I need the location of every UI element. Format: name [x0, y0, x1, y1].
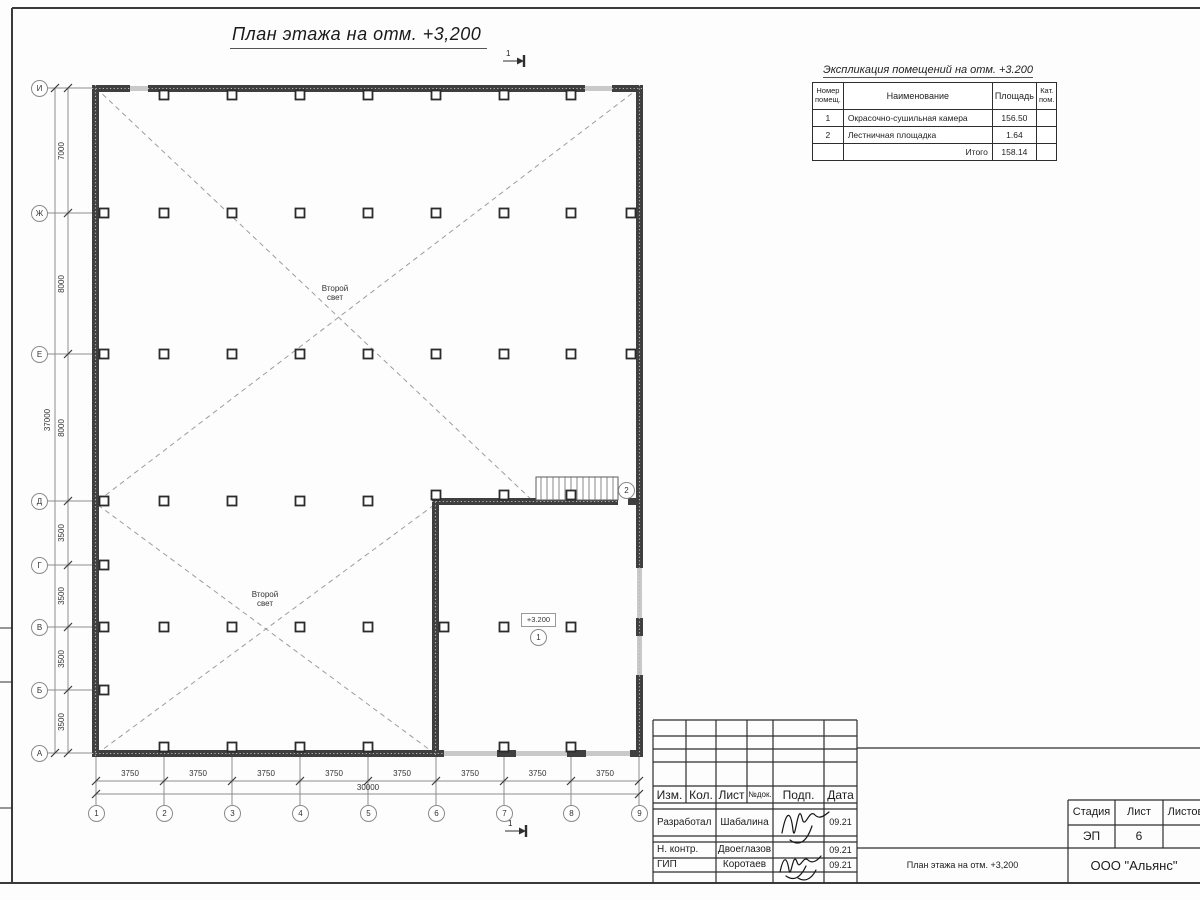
column: [567, 350, 576, 359]
header-cat: Кат. пом.: [1037, 83, 1057, 110]
tb-name-gip: Коротаев: [716, 858, 773, 872]
signatures: [780, 812, 829, 880]
dim-label-horizontal: 3750: [450, 769, 490, 779]
explication-title: Экспликация помещений на отм. +3.200: [823, 64, 1033, 78]
column: [364, 209, 373, 218]
wall-opening: [586, 751, 630, 756]
column: [500, 209, 509, 218]
tb-doc-title: План этажа на отм. +3,200: [857, 848, 1068, 883]
axis-circle-col-8: 8: [563, 805, 580, 822]
column: [228, 497, 237, 506]
tb-date-developer: 09.21: [824, 809, 857, 836]
column: [296, 623, 305, 632]
column: [567, 743, 576, 752]
column: [364, 497, 373, 506]
column: [500, 491, 509, 500]
dim-label-vertical: 3500: [57, 576, 67, 616]
room-area-cell: 1.64: [992, 127, 1036, 144]
tb-sheets-label: Листов: [1163, 800, 1200, 825]
dim-label-horizontal: 3750: [110, 769, 150, 779]
tb-col-ndok: №док.: [747, 787, 773, 803]
header-number: Номер помещ.: [813, 83, 844, 110]
total-area: 158.14: [992, 144, 1036, 161]
axis-circle-col-3: 3: [224, 805, 241, 822]
column: [160, 497, 169, 506]
tb-col-list: Лист: [716, 787, 747, 803]
axis-circle-row-Е: Е: [31, 346, 48, 363]
section-mark-top-label: 1: [506, 49, 510, 58]
tb-name-ncontrol: Двоеглазов: [716, 842, 773, 858]
tb-col-podp: Подп.: [773, 787, 824, 803]
explication-header-row: Номер помещ. Наименование Площадь Кат. п…: [813, 83, 1057, 110]
column: [567, 623, 576, 632]
tb-company: ООО "Альянс": [1068, 848, 1200, 883]
column: [100, 497, 109, 506]
column: [296, 497, 305, 506]
header-area: Площадь: [992, 83, 1036, 110]
room-name-cell: Окрасочно-сушильная камера: [843, 110, 992, 127]
drawing-title: План этажа на отм. +3,200: [230, 24, 487, 49]
column: [160, 91, 169, 100]
dim-label-horizontal: 3750: [585, 769, 625, 779]
column: [160, 743, 169, 752]
column: [432, 209, 441, 218]
axis-circle-col-4: 4: [292, 805, 309, 822]
room-name-cell: Лестничная площадка: [843, 127, 992, 144]
elevation-mark: +3.200: [521, 613, 556, 627]
column: [228, 91, 237, 100]
axis-circle-row-Б: Б: [31, 682, 48, 699]
empty-cell: [1037, 144, 1057, 161]
void-diagonal: [98, 88, 639, 501]
dim-label-horizontal: 3750: [246, 769, 286, 779]
axis-circle-col-5: 5: [360, 805, 377, 822]
header-name: Наименование: [843, 83, 992, 110]
signature: [780, 856, 821, 880]
void-diagonals: [96, 88, 639, 753]
dim-label-vertical-total: 37000: [43, 400, 53, 440]
column: [432, 491, 441, 500]
axis-circle-row-Г: Г: [31, 557, 48, 574]
column: [228, 623, 237, 632]
dim-label-horizontal: 3750: [178, 769, 218, 779]
axis-leaders: [46, 88, 639, 806]
dim-label-vertical: 3500: [57, 702, 67, 742]
walls: [92, 85, 643, 757]
room-number-1: 1: [530, 629, 547, 646]
second-light-label-upper: Второй свет: [313, 284, 357, 302]
axis-circle-row-И: И: [31, 80, 48, 97]
table-row: 2 Лестничная площадка 1.64: [813, 127, 1057, 144]
wall-opening: [444, 751, 497, 756]
tb-col-izm: Изм.: [653, 787, 686, 803]
column: [100, 561, 109, 570]
dimension-ticks: [51, 84, 643, 798]
room-cat-cell: [1037, 110, 1057, 127]
tb-col-data: Дата: [824, 787, 857, 803]
signature: [782, 812, 829, 843]
column: [296, 209, 305, 218]
axis-circle-row-Д: Д: [31, 493, 48, 510]
column: [567, 209, 576, 218]
tb-sheet-value: 6: [1115, 825, 1163, 848]
column: [627, 350, 636, 359]
column: [432, 350, 441, 359]
axis-circle-col-6: 6: [428, 805, 445, 822]
column: [100, 686, 109, 695]
tb-col-kol: Кол.: [686, 787, 716, 803]
column: [364, 91, 373, 100]
wall-bottom-corner: [630, 750, 643, 757]
dimension-lines: [55, 88, 639, 794]
tb-stage-value: ЭП: [1068, 825, 1115, 848]
axis-circle-col-7: 7: [496, 805, 513, 822]
tb-sheet-label: Лист: [1115, 800, 1163, 825]
column: [567, 491, 576, 500]
tb-role-gip: ГИП: [657, 858, 715, 872]
column: [364, 743, 373, 752]
table-row: 1 Окрасочно-сушильная камера 156.50: [813, 110, 1057, 127]
wall-opening: [585, 86, 612, 91]
axis-circle-col-2: 2: [156, 805, 173, 822]
dim-label-horizontal: 3750: [518, 769, 558, 779]
column: [160, 209, 169, 218]
room-number-cell: 1: [813, 110, 844, 127]
tb-date-gip: 09.21: [824, 858, 857, 872]
column: [228, 743, 237, 752]
dim-label-vertical: 7000: [57, 131, 67, 171]
column: [500, 91, 509, 100]
tb-date-ncontrol: 09.21: [824, 842, 857, 858]
tb-stage-label: Стадия: [1068, 800, 1115, 825]
column: [228, 209, 237, 218]
dim-label-horizontal-total: 30000: [348, 783, 388, 793]
column: [296, 91, 305, 100]
axis-circle-row-В: В: [31, 619, 48, 636]
dim-label-horizontal: 3750: [314, 769, 354, 779]
dim-label-vertical: 8000: [57, 264, 67, 304]
axis-circle-col-9: 9: [631, 805, 648, 822]
total-label: Итого: [843, 144, 992, 161]
empty-cell: [813, 144, 844, 161]
column: [432, 91, 441, 100]
staircase: [536, 477, 618, 500]
column: [228, 350, 237, 359]
column: [567, 91, 576, 100]
column: [627, 209, 636, 218]
column: [100, 350, 109, 359]
dim-label-vertical: 8000: [57, 408, 67, 448]
column: [500, 350, 509, 359]
total-row: Итого 158.14: [813, 144, 1057, 161]
wall-texture: [92, 85, 643, 757]
column: [296, 743, 305, 752]
room-number-2: 2: [618, 482, 635, 499]
column: [500, 743, 509, 752]
column: [364, 350, 373, 359]
explication-table: Номер помещ. Наименование Площадь Кат. п…: [812, 82, 1057, 161]
dim-label-vertical: 3500: [57, 513, 67, 553]
dim-label-horizontal: 3750: [382, 769, 422, 779]
column: [440, 623, 449, 632]
column: [160, 350, 169, 359]
column: [364, 623, 373, 632]
column: [296, 350, 305, 359]
dim-label-vertical: 3500: [57, 639, 67, 679]
room-number-cell: 2: [813, 127, 844, 144]
wall-opening: [130, 86, 148, 91]
tb-role-developer: Разработал: [657, 809, 715, 836]
axis-circle-row-А: А: [31, 745, 48, 762]
axis-circle-row-Ж: Ж: [31, 205, 48, 222]
column: [500, 623, 509, 632]
columns: [100, 91, 636, 752]
wall-opening: [516, 751, 567, 756]
room-cat-cell: [1037, 127, 1057, 144]
column: [100, 209, 109, 218]
second-light-label-lower: Второй свет: [243, 590, 287, 608]
axis-circle-col-1: 1: [88, 805, 105, 822]
column: [100, 623, 109, 632]
wall-stub: [628, 498, 643, 505]
column: [160, 623, 169, 632]
explication-title-wrap: Экспликация помещений на отм. +3.200: [812, 60, 1044, 78]
room-area-cell: 156.50: [992, 110, 1036, 127]
tb-name-developer: Шабалина: [716, 809, 773, 836]
tb-role-ncontrol: Н. контр.: [657, 842, 715, 858]
